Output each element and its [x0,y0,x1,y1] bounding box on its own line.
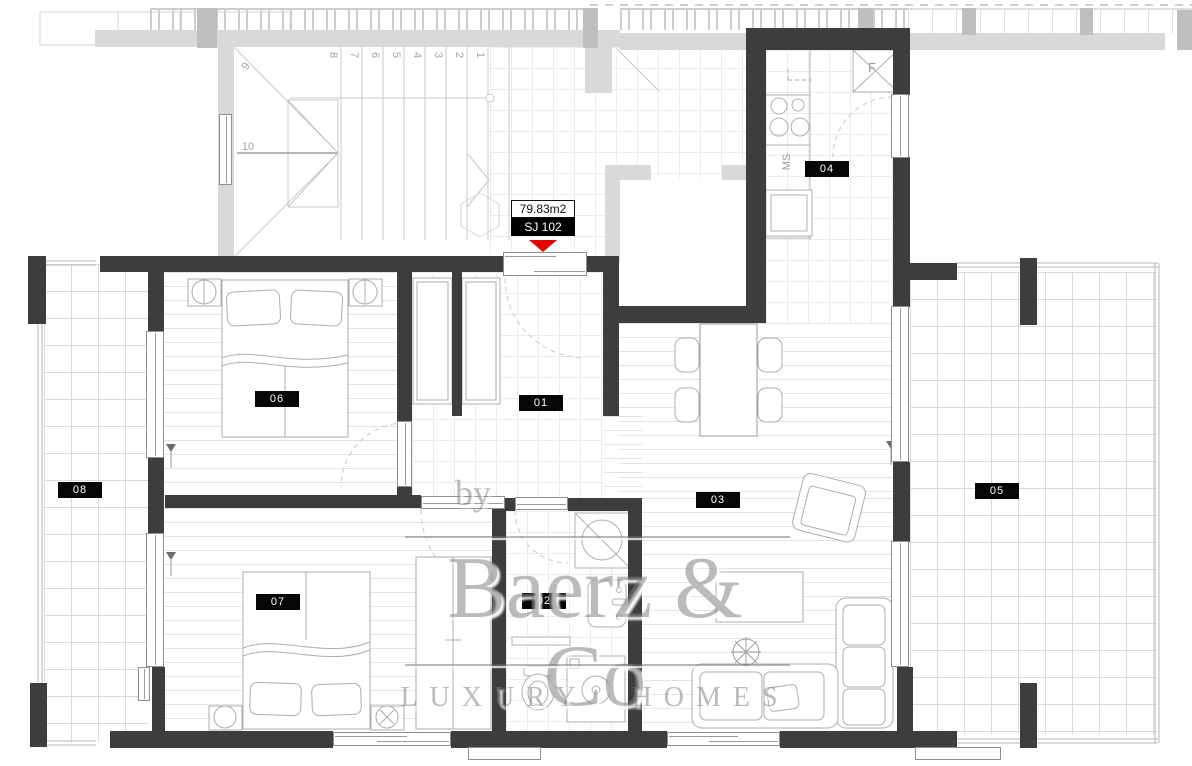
stair-step-number: 5 [388,48,402,62]
floor-living-upper [619,323,893,498]
window-stairwell [219,114,232,185]
neighbor-balcony-hatch [620,8,858,30]
fridge-label: F [868,60,876,75]
floor-bedroom-2 [164,508,492,731]
wall-segment [165,495,413,508]
room-label-hallway: 01 [519,395,563,411]
window-bedroom-1 [146,331,164,458]
window-kitchen [891,94,909,158]
wall-segment [148,256,164,332]
window-living-1 [891,306,909,462]
wall-segment [452,256,462,416]
wall-segment [413,495,421,508]
room-label-bedroom-2: 07 [256,594,300,610]
shaft-wall [722,165,746,180]
window-sill [468,747,541,760]
wall-segment [630,731,667,748]
wall-segment [148,458,164,534]
neighbor-pillar [1080,8,1093,35]
wall-segment [893,157,910,307]
neighbor-balcony-hatch [873,8,908,30]
window-bedroom-2 [146,533,164,667]
wall-segment [780,731,957,748]
door-bedroom-1 [397,421,412,487]
neighbor-wall [620,33,746,50]
wall-segment [893,462,910,542]
floor-bedroom-1 [164,272,397,495]
wall-segment [746,28,766,323]
floor-bathroom [506,511,628,731]
neighbor-pillar [583,8,598,48]
wall-segment [492,731,630,748]
entrance-door [503,252,587,276]
wall-segment [152,667,165,748]
wall-segment [1020,683,1037,748]
wall-segment [897,667,913,733]
stair-step-number: 1 [472,48,486,62]
floor-hallway [412,272,603,498]
room-label-bathroom: 02 [522,593,566,609]
wall-segment [610,306,750,323]
sliding-door-bedroom-2 [333,732,451,746]
window-sill [915,747,1001,760]
door-bathroom [515,497,568,510]
floor-terrace-left [44,264,148,742]
unit-pointer-icon [529,240,557,252]
floor-neighbor-topright [908,8,1192,34]
room-label-terrace-left: 08 [58,482,102,498]
neighbor-pillar [962,8,976,35]
stair-step-number: 3 [430,48,444,62]
wall-segment [1020,258,1037,325]
room-label-living: 03 [696,492,740,508]
shaft-interior [616,178,748,308]
wall-segment [603,256,619,416]
neighbor-wall [871,33,1165,50]
stair-step-number: 4 [409,48,423,62]
unit-id-label: SJ 102 [511,218,575,236]
wall-segment [568,498,628,511]
floor-plan: 1 2 3 4 5 6 7 8 9 10 F MS 01 02 03 04 05… [0,0,1192,766]
stair-step-number: 7 [346,48,360,62]
room-label-kitchen: 04 [805,161,849,177]
room-label-bedroom-1: 06 [255,391,299,407]
stair-step-number: 10 [237,141,259,155]
shaft-wall [605,165,651,180]
wall-segment [893,50,910,95]
floor-kitchen [766,50,893,323]
dishwasher-label: MS [781,147,793,177]
floor-terrace-right [910,272,1157,734]
floor-passage [603,416,642,498]
stair-step-number: 6 [367,48,381,62]
room-label-terrace-right: 05 [975,483,1019,499]
wall-segment [910,263,957,280]
neighbor-pillar [1177,10,1192,50]
shaft-wall [605,180,620,262]
floor-living-lower [642,498,893,731]
stair-step-number: 2 [451,48,465,62]
stair-step-number: 9 [237,57,256,76]
sliding-door-living-east [891,541,909,667]
wall-segment [628,498,642,731]
door-bedroom-2 [421,496,505,509]
wall-segment [397,487,412,508]
wall-pillar [30,683,47,747]
sliding-door-living-south [667,732,780,746]
neighbor-pillar [197,8,217,48]
wall-segment [110,731,333,748]
wall-segment [451,731,492,748]
wall-pillar [28,256,46,324]
neighbor-wall [585,47,612,93]
neighbor-wall [95,30,620,47]
window-terrace-left [138,667,150,701]
wall-segment [397,256,412,421]
stair-step-number: 8 [325,48,339,62]
wall-segment [492,498,506,748]
wall-segment [746,28,910,50]
unit-area-label: 79.83m2 [511,200,575,218]
